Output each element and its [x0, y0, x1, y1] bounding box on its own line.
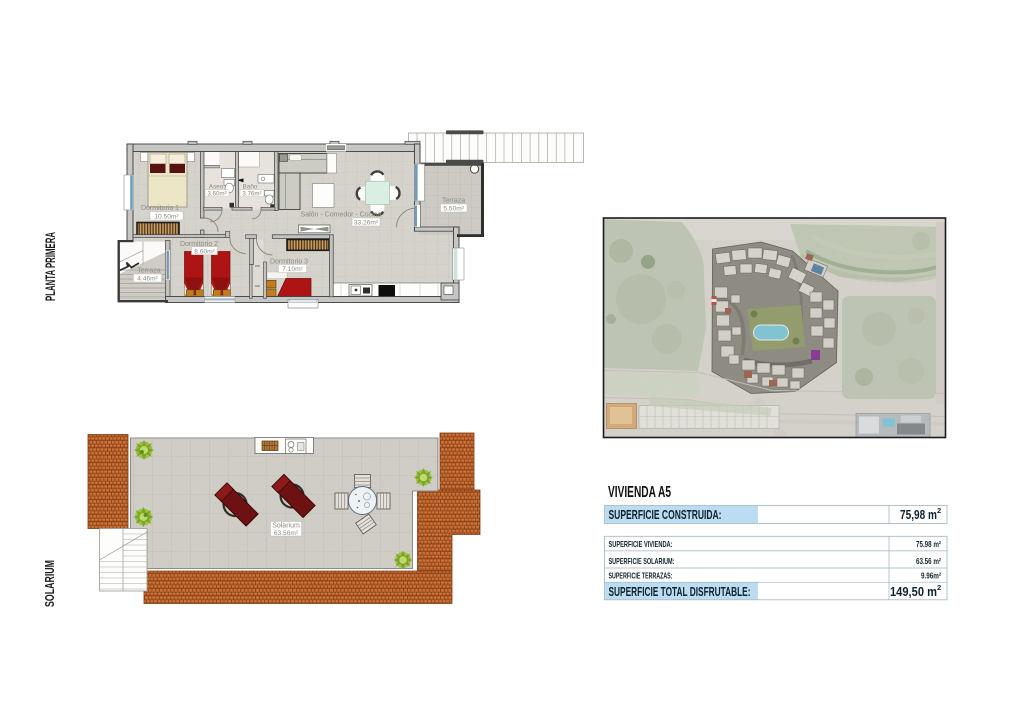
- svg-text:75,98 m: 75,98 m: [900, 508, 937, 522]
- svg-text:3.76m²: 3.76m²: [242, 191, 261, 198]
- svg-text:8.60m²: 8.60m²: [194, 248, 215, 255]
- svg-text:SUPERFICIE TERRAZAS:: SUPERFICIE TERRAZAS:: [609, 572, 673, 581]
- svg-text:SOLARIUM: SOLARIUM: [43, 560, 57, 607]
- svg-text:VIVIENDA A5: VIVIENDA A5: [608, 484, 671, 501]
- svg-text:2: 2: [937, 583, 941, 592]
- svg-text:PLANTA PRIMERA: PLANTA PRIMERA: [43, 232, 58, 301]
- svg-text:75.98 m²: 75.98 m²: [916, 540, 941, 549]
- svg-text:Terraza: Terraza: [137, 268, 160, 275]
- svg-text:63.56 m²: 63.56 m²: [916, 557, 941, 566]
- svg-text:10.50m²: 10.50m²: [154, 213, 179, 220]
- svg-text:SUPERFICIE TOTAL DISFRUTABLE:: SUPERFICIE TOTAL DISFRUTABLE:: [609, 585, 751, 599]
- svg-text:9.96m²: 9.96m²: [921, 572, 941, 581]
- svg-text:2: 2: [937, 506, 941, 515]
- svg-text:SUPERFICIE CONSTRUIDA:: SUPERFICIE CONSTRUIDA:: [609, 508, 722, 522]
- svg-text:5.50m²: 5.50m²: [443, 206, 464, 213]
- svg-text:33.26m²: 33.26m²: [354, 220, 379, 227]
- svg-text:3.60m²: 3.60m²: [207, 191, 226, 198]
- svg-text:Dormitorio 1: Dormitorio 1: [141, 205, 179, 212]
- svg-text:149,50 m: 149,50 m: [890, 585, 937, 599]
- svg-text:4.46m²: 4.46m²: [137, 276, 158, 283]
- svg-text:Salón - Comedor - Cocina: Salón - Comedor - Cocina: [301, 212, 382, 219]
- svg-text:SUPERFICIE SOLARIUM:: SUPERFICIE SOLARIUM:: [609, 557, 675, 566]
- svg-text:63.56m²: 63.56m²: [274, 530, 299, 537]
- svg-text:7.10m²: 7.10m²: [282, 266, 303, 273]
- svg-text:SUPERFICIE VIVIENDA:: SUPERFICIE VIVIENDA:: [609, 540, 673, 549]
- svg-text:Terraza: Terraza: [442, 198, 465, 205]
- svg-text:Solarium: Solarium: [272, 523, 300, 530]
